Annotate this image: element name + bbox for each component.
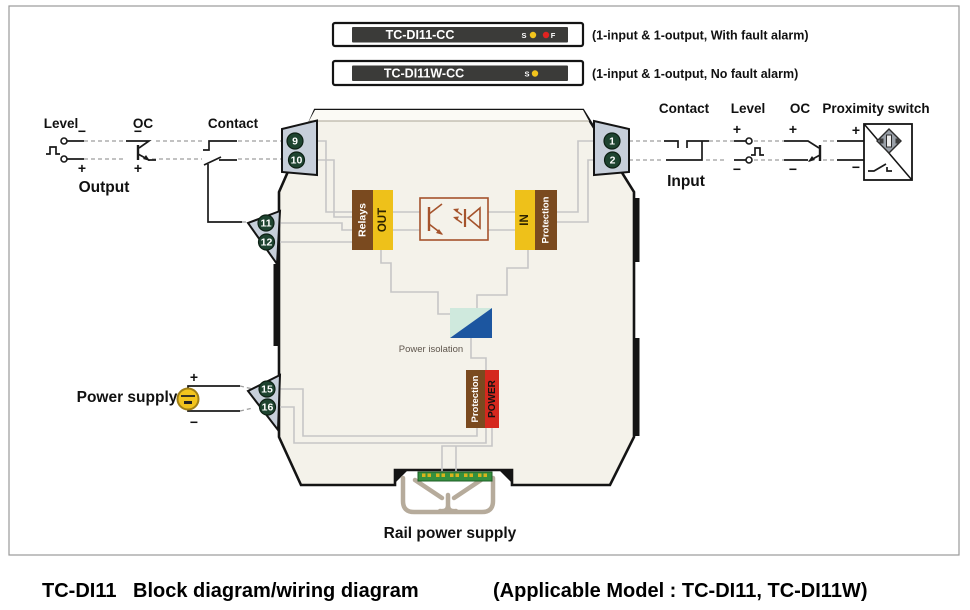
protection-in-label: Protection <box>541 196 552 243</box>
terminal-16-label: 16 <box>262 402 274 414</box>
terminal-dot-icon <box>61 138 67 144</box>
module-housing <box>279 110 634 485</box>
plus-sign: + <box>78 160 86 176</box>
sensor-side-left-icon <box>880 139 884 144</box>
wiring-diagram-canvas: TC-DI11-CC S F (1-input & 1-output, With… <box>0 0 970 610</box>
edge-rib-left <box>274 264 280 346</box>
out-block-label: OUT <box>377 208 389 232</box>
caption: TC-DI11 Block diagram/wiring diagram (Ap… <box>42 580 867 602</box>
status-led-label: S <box>524 70 529 79</box>
model-name: TC-DI11W-CC <box>384 67 464 81</box>
terminal-9-label: 9 <box>292 136 298 148</box>
terminal-dot-icon <box>61 156 67 162</box>
level-label: Level <box>731 101 766 116</box>
battery-icon <box>178 389 199 410</box>
terminal-12-label: 12 <box>261 237 273 249</box>
status-led-yellow-icon <box>530 32 536 38</box>
status-led-label: S <box>521 31 526 40</box>
minus-sign: − <box>789 161 797 177</box>
plus-sign: + <box>852 122 860 138</box>
terminal-2-label: 2 <box>610 155 616 167</box>
model-description: (1-input & 1-output, No fault alarm) <box>592 67 798 81</box>
sensor-core-icon <box>887 135 892 147</box>
fault-led-red-icon <box>543 32 549 38</box>
power-block-label: POWER <box>487 379 498 418</box>
minus-sign: − <box>78 123 86 139</box>
power-isolation-label: Power isolation <box>399 344 463 355</box>
terminal-15-label: 15 <box>261 384 273 396</box>
input-section-label: Input <box>667 173 705 190</box>
output-section-label: Output <box>79 179 130 196</box>
edge-rib-right-upper <box>634 198 640 262</box>
minus-sign: − <box>134 123 142 139</box>
relays-block-label: Relays <box>357 203 369 237</box>
contact-label: Contact <box>208 116 259 131</box>
protection-power-label: Protection <box>470 375 481 422</box>
rail-power-supply-label: Rail power supply <box>384 525 517 542</box>
isolator-module: Relays OUT IN Protection Power isolation <box>274 110 640 485</box>
oc-label: OC <box>790 101 811 116</box>
diagram-page: TC-DI11-CC S F (1-input & 1-output, With… <box>0 0 970 610</box>
proximity-label: Proximity switch <box>822 101 929 116</box>
terminal-dot-icon <box>746 138 752 144</box>
sensor-side-right-icon <box>896 139 900 144</box>
status-led-yellow-icon <box>532 70 538 76</box>
power-supply-label: Power supply <box>77 389 178 406</box>
terminal-11-label: 11 <box>260 218 271 230</box>
minus-sign: − <box>190 414 198 430</box>
plus-sign: + <box>190 369 198 385</box>
minus-sign: − <box>852 159 860 175</box>
fault-led-label: F <box>551 31 556 40</box>
module-top-face <box>309 110 589 121</box>
minus-sign: − <box>733 161 741 177</box>
contact-label: Contact <box>659 101 710 116</box>
terminal-10-label: 10 <box>291 155 303 167</box>
in-block-label: IN <box>519 214 531 226</box>
level-label: Level <box>44 116 79 131</box>
edge-rib-right-lower <box>634 338 640 436</box>
caption-applicable: (Applicable Model : TC-DI11, TC-DI11W) <box>493 580 867 602</box>
plus-sign: + <box>134 160 142 176</box>
caption-title: Block diagram/wiring diagram <box>133 580 419 602</box>
terminal-1-label: 1 <box>609 136 615 148</box>
caption-model: TC-DI11 <box>42 580 116 602</box>
model-description: (1-input & 1-output, With fault alarm) <box>592 29 809 43</box>
plus-sign: + <box>733 121 741 137</box>
terminal-dot-icon <box>746 157 752 163</box>
model-name: TC-DI11-CC <box>386 28 455 42</box>
plus-sign: + <box>789 121 797 137</box>
